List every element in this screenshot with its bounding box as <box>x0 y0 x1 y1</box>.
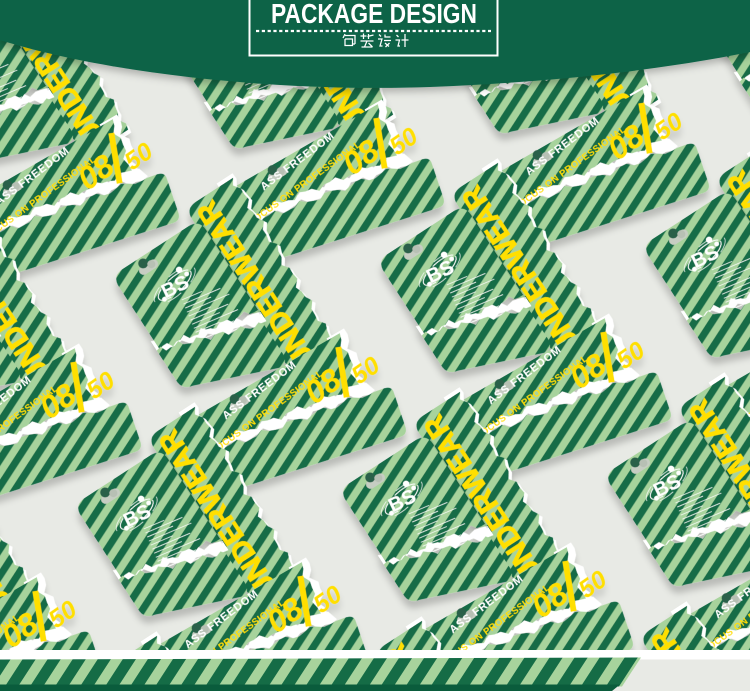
svg-text:PACKAGE DESIGN: PACKAGE DESIGN <box>271 0 477 29</box>
